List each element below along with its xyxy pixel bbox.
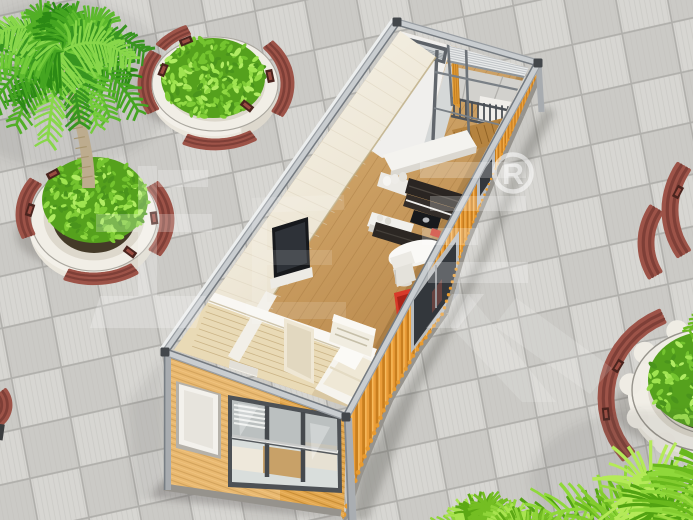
svg-text:R: R [502,158,524,191]
